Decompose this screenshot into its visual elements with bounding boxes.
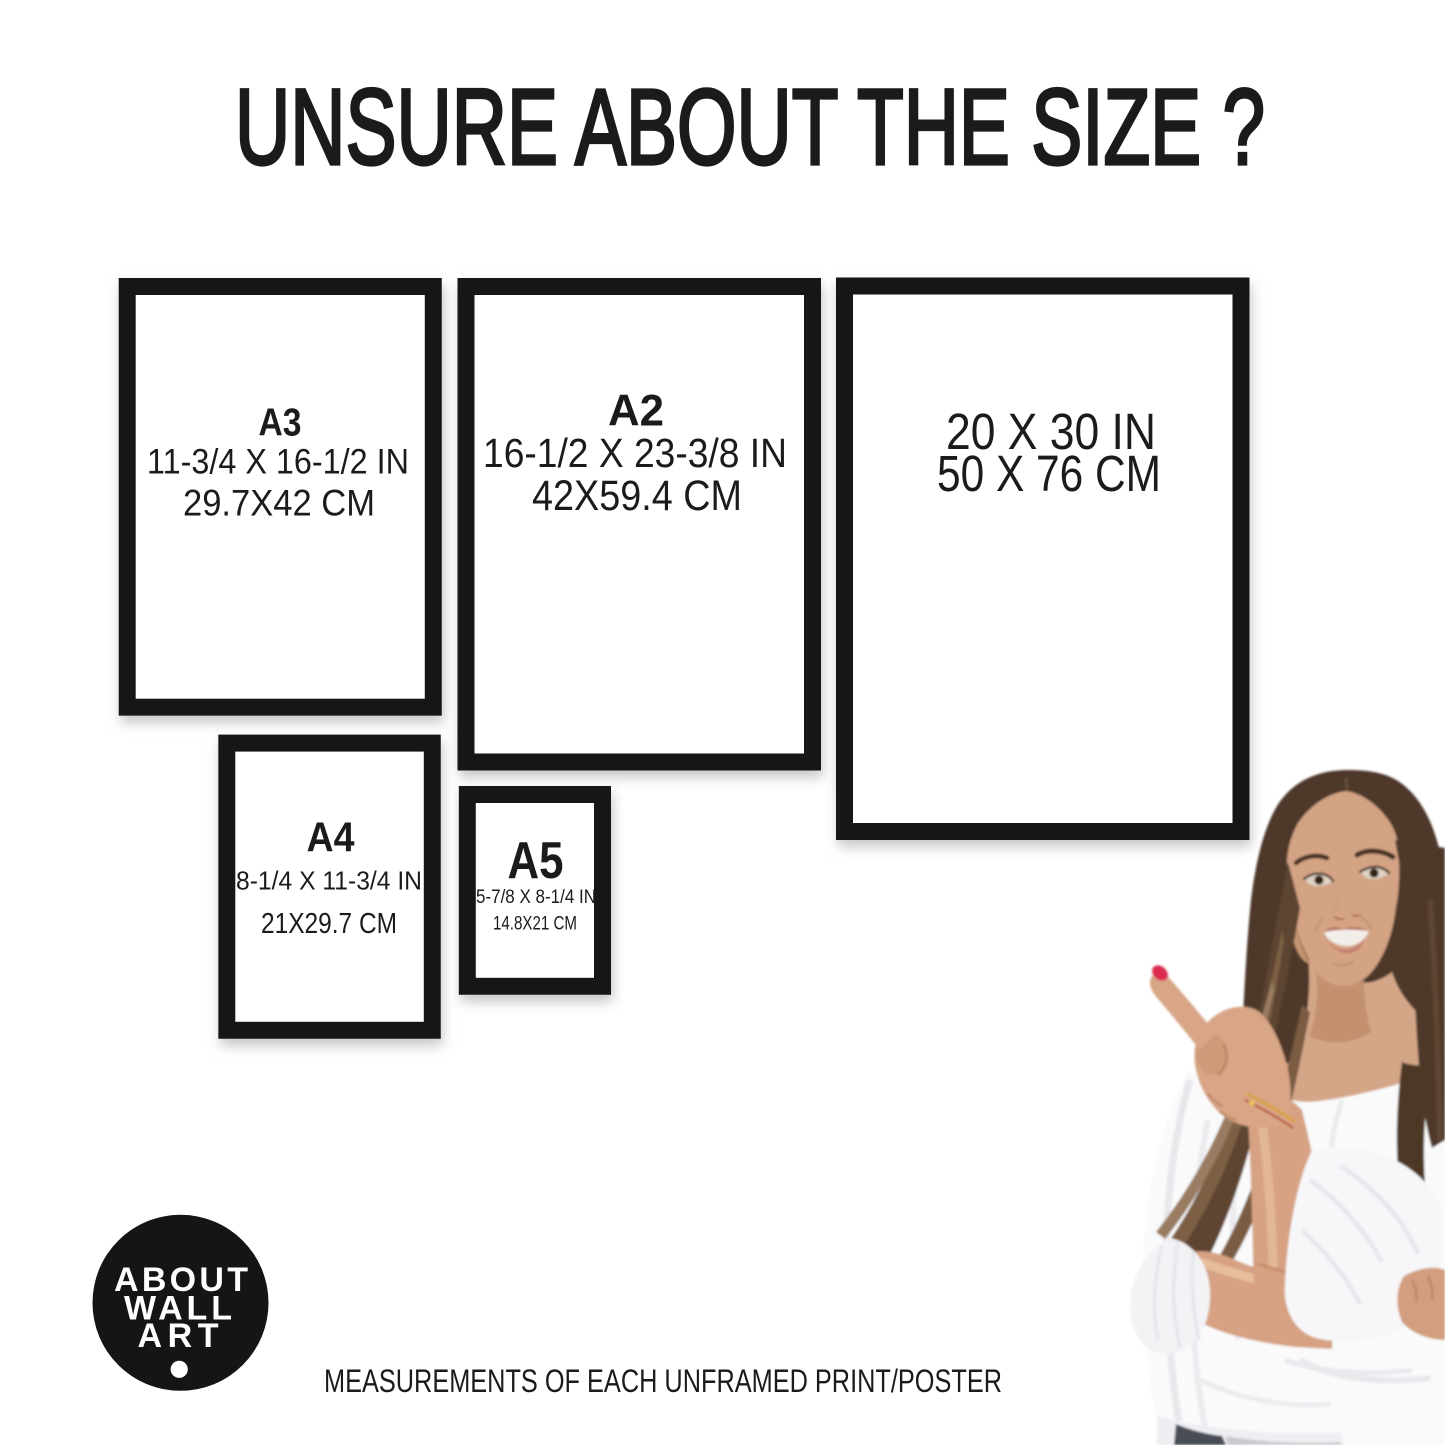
svg-text:MEASUREMENTS OF EACH UNFRAMED: MEASUREMENTS OF EACH UNFRAMED PRINT/POST… — [324, 1363, 1002, 1399]
svg-text:A3: A3 — [259, 402, 302, 445]
svg-text:21X29.7 CM: 21X29.7 CM — [261, 908, 397, 940]
svg-text:A2: A2 — [608, 386, 664, 435]
svg-text:ART: ART — [138, 1317, 219, 1355]
svg-text:50 X 76 CM: 50 X 76 CM — [937, 445, 1161, 502]
svg-text:8-1/4 X 11-3/4 IN: 8-1/4 X 11-3/4 IN — [236, 868, 422, 896]
svg-text:42X59.4 CM: 42X59.4 CM — [532, 472, 742, 520]
svg-text:14.8X21 CM: 14.8X21 CM — [493, 914, 577, 935]
svg-text:29.7X42 CM: 29.7X42 CM — [183, 483, 375, 524]
svg-text:16-1/2 X 23-3/8 IN: 16-1/2 X 23-3/8 IN — [483, 430, 787, 476]
svg-text:UNSURE ABOUT THE SIZE ?: UNSURE ABOUT THE SIZE ? — [235, 66, 1265, 187]
svg-text:11-3/4 X 16-1/2 IN: 11-3/4 X 16-1/2 IN — [147, 443, 409, 482]
svg-text:5-7/8 X 8-1/4 IN: 5-7/8 X 8-1/4 IN — [476, 886, 596, 908]
svg-text:A5: A5 — [508, 831, 564, 889]
svg-text:A4: A4 — [307, 814, 356, 861]
